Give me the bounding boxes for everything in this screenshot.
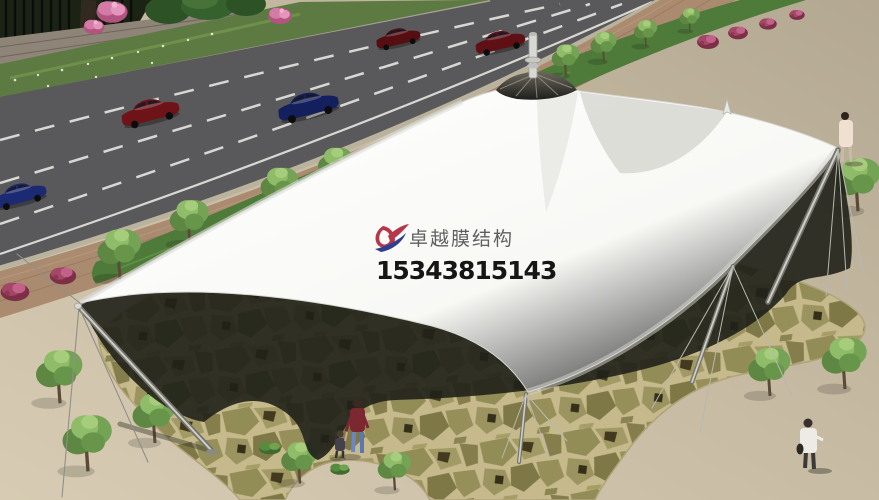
watermark-phone-number: 15343815143 bbox=[376, 256, 556, 285]
watermark-company-name: 卓越膜结构 bbox=[409, 228, 514, 250]
pink-flower-bush bbox=[96, 1, 127, 23]
rendering-canvas: 卓越膜结构 15343815143 bbox=[0, 0, 879, 500]
pink-flower-bush bbox=[84, 20, 105, 34]
mast-left-cap bbox=[75, 303, 82, 309]
scene-svg: 卓越膜结构 15343815143 bbox=[0, 0, 879, 500]
pink-flower-bush bbox=[268, 8, 291, 24]
